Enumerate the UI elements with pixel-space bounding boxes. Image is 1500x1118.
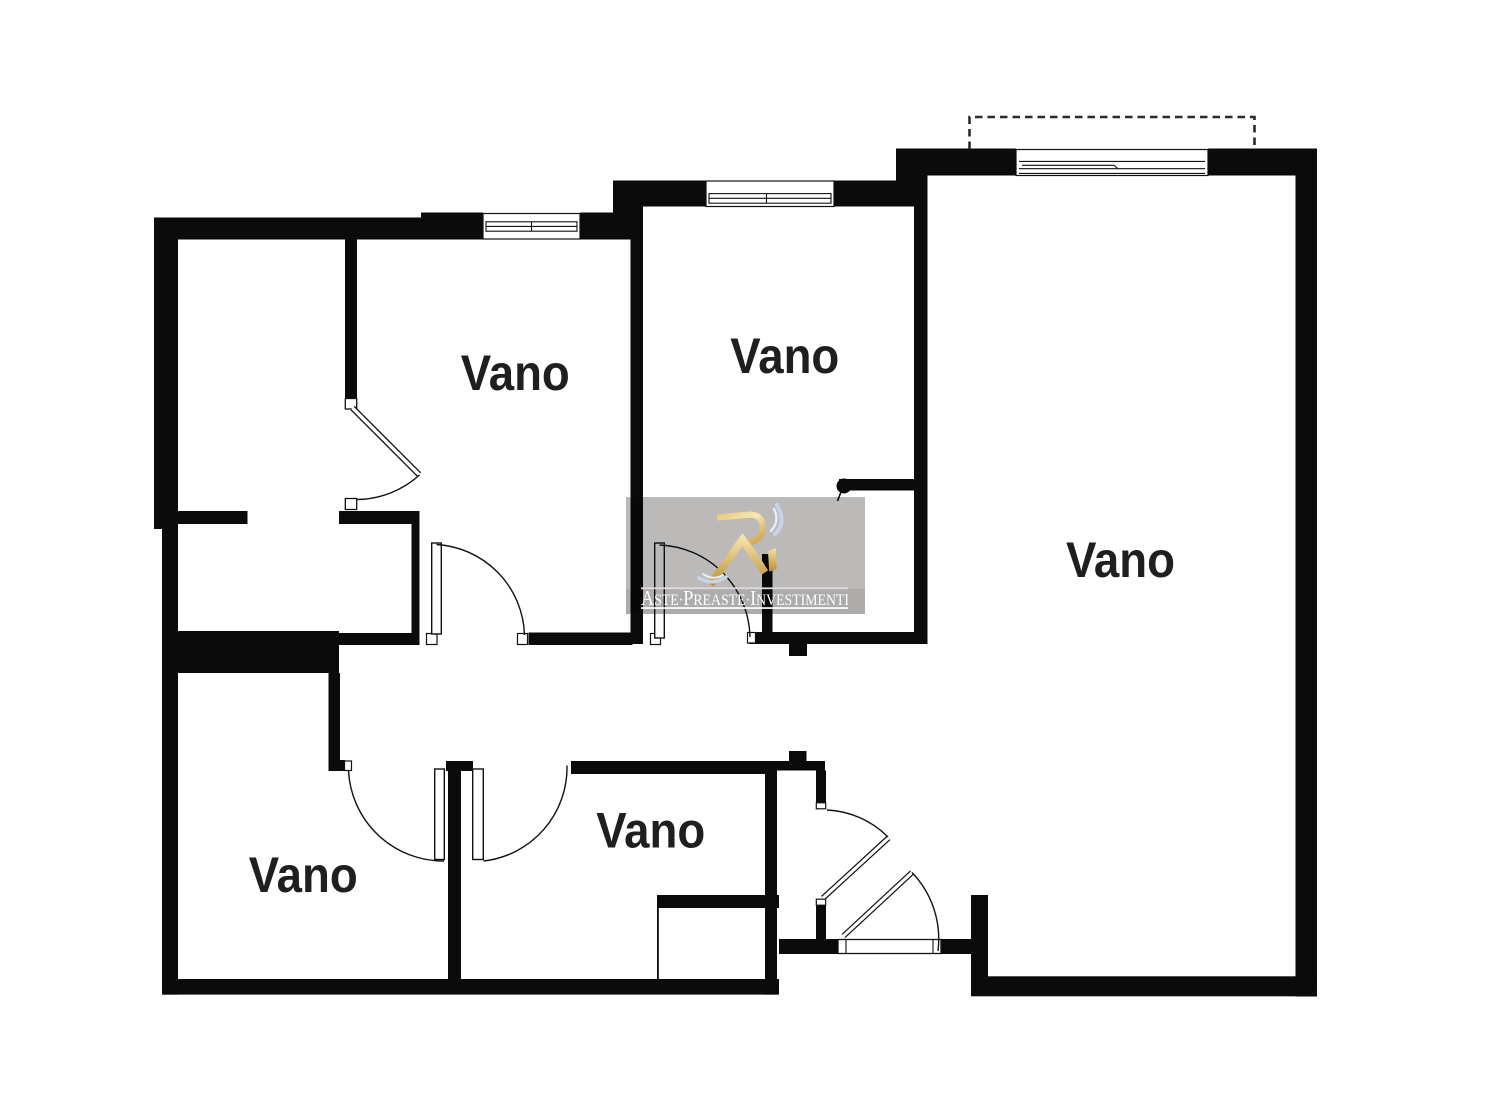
svg-text:Vano: Vano — [596, 802, 705, 858]
svg-text:Vano: Vano — [461, 345, 570, 401]
svg-text:Vano: Vano — [730, 328, 839, 384]
svg-text:Vano: Vano — [1066, 532, 1175, 588]
svg-text:Vano: Vano — [249, 847, 358, 903]
